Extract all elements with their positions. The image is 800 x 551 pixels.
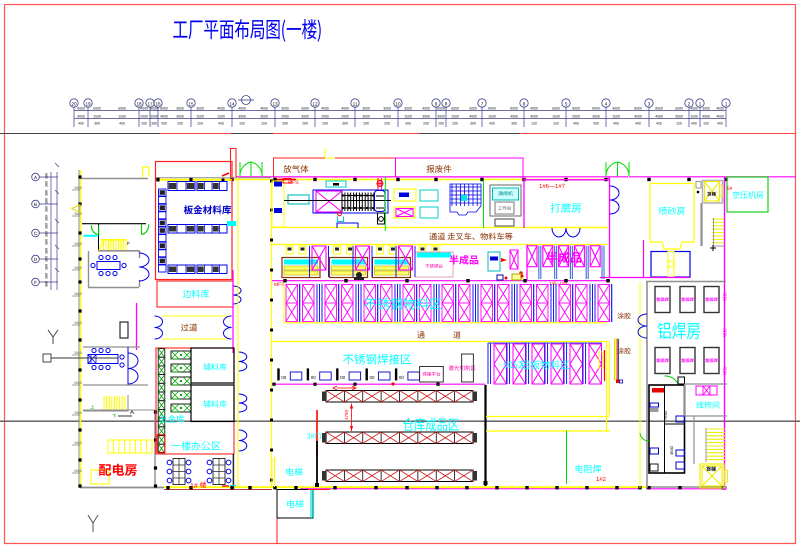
svg-text:300: 300 [151,122,157,126]
svg-text:4000: 4000 [469,115,477,119]
svg-text:200: 200 [452,122,458,126]
svg-text:150: 150 [239,122,245,126]
svg-text:2000: 2000 [140,115,148,119]
svg-text:300: 300 [405,122,411,126]
svg-text:150: 150 [261,122,267,126]
svg-text:400: 400 [613,122,619,126]
svg-text:3000: 3000 [176,107,184,111]
svg-text:380: 380 [45,215,49,221]
svg-text:1: 1 [725,101,728,106]
svg-text:380: 380 [45,248,49,254]
svg-text:4640: 4640 [669,445,674,455]
svg-text:400: 400 [691,122,697,126]
svg-text:4000: 4000 [655,115,663,119]
svg-text:8000: 8000 [655,107,663,111]
svg-text:380: 380 [45,281,49,287]
svg-text:6000: 6000 [301,107,309,111]
svg-text:13: 13 [272,101,278,106]
svg-text:6000: 6000 [150,107,158,111]
svg-text:200: 200 [302,122,308,126]
svg-text:00: 00 [370,375,376,380]
svg-text:14: 14 [229,101,235,106]
svg-text:380: 380 [45,206,49,212]
svg-text:17: 17 [147,101,153,106]
svg-text:4000: 4000 [690,107,698,111]
svg-text:3000: 3000 [592,115,600,119]
svg-text:7: 7 [481,101,484,106]
svg-text:3800: 3800 [74,411,82,415]
svg-text:F: F [34,280,37,285]
svg-text:3800: 3800 [74,292,82,296]
svg-text:3000: 3000 [238,115,246,119]
svg-text:380: 380 [45,198,49,204]
svg-text:3000: 3000 [404,107,412,111]
svg-text:3: 3 [648,101,651,106]
svg-text:4000: 4000 [530,115,538,119]
svg-text:6000: 6000 [118,107,126,111]
svg-text:4000: 4000 [702,115,710,119]
svg-text:3800: 3800 [74,212,82,216]
svg-text:3000: 3000 [176,115,184,119]
svg-text:400: 400 [78,122,84,126]
svg-text:380: 380 [45,273,49,279]
svg-text:16: 16 [155,101,161,106]
svg-text:200: 200 [363,122,369,126]
svg-text:1#2: 1#2 [596,476,607,483]
svg-text:F: F [127,241,130,246]
svg-text:6000: 6000 [552,107,560,111]
svg-text:3000: 3000 [362,115,370,119]
svg-text:380: 380 [45,256,49,262]
svg-text:3000: 3000 [301,115,309,119]
svg-text:3800: 3800 [74,321,82,325]
svg-text:3800: 3800 [74,351,82,355]
svg-text:2000: 2000 [150,115,158,119]
svg-text:4000: 4000 [260,107,268,111]
svg-text:6000: 6000 [437,107,445,111]
svg-text:300: 300 [342,122,348,126]
svg-text:150: 150 [197,122,203,126]
svg-text:200: 200 [322,122,328,126]
svg-text:4000: 4000 [341,107,349,111]
svg-text:8000: 8000 [572,107,580,111]
svg-text:1: 1 [699,101,702,106]
svg-text:6: 6 [523,101,526,106]
svg-text:200: 200 [384,122,390,126]
svg-text:400: 400 [573,122,579,126]
svg-text:4000: 4000 [530,107,538,111]
svg-text:8000: 8000 [592,107,600,111]
svg-text:3000: 3000 [702,107,710,111]
svg-text:4000: 4000 [77,115,85,119]
svg-text:4000: 4000 [140,107,148,111]
svg-text:8000: 8000 [77,107,85,111]
svg-text:400: 400 [489,122,495,126]
svg-text:3800: 3800 [74,441,82,445]
svg-text:300: 300 [593,122,599,126]
svg-text:6000: 6000 [469,107,477,111]
svg-text:6000: 6000 [675,107,683,111]
svg-text:1#6—1#7: 1#6—1#7 [539,183,566,190]
svg-text:00: 00 [311,375,317,380]
svg-text:5: 5 [565,101,568,106]
svg-text:300: 300 [470,122,476,126]
svg-text:380: 380 [45,264,49,270]
svg-text:400: 400 [119,122,125,126]
svg-text:150: 150 [703,122,709,126]
svg-text:380: 380 [45,173,49,179]
svg-text:200: 200 [438,122,444,126]
svg-text:3000: 3000 [437,115,445,119]
svg-text:1500: 1500 [612,115,620,119]
svg-text:3000: 3000 [383,107,391,111]
svg-text:3000: 3000 [281,107,289,111]
svg-text:1500: 1500 [451,115,459,119]
svg-text:2000: 2000 [321,115,329,119]
svg-text:2: 2 [688,101,691,106]
svg-text:4000: 4000 [238,107,246,111]
svg-text:12: 12 [312,101,318,106]
svg-text:3800: 3800 [74,186,82,190]
svg-text:4000: 4000 [160,115,168,119]
svg-text:19: 19 [85,101,91,106]
svg-text:3000: 3000 [675,115,683,119]
svg-text:8000: 8000 [634,107,642,111]
svg-text:15: 15 [188,101,194,106]
svg-text:1500: 1500 [217,115,225,119]
svg-text:11: 11 [353,101,358,106]
svg-text:4000: 4000 [716,107,724,111]
svg-text:300: 300 [511,122,517,126]
svg-text:8000: 8000 [510,107,518,111]
svg-text:400: 400 [218,122,224,126]
svg-text:6000: 6000 [451,107,459,111]
svg-text:3800: 3800 [74,242,82,246]
svg-text:B: B [34,202,37,207]
svg-text:20: 20 [71,101,77,106]
svg-text:4000: 4000 [634,115,642,119]
svg-text:1#: 1# [190,483,198,490]
svg-text:150: 150 [553,122,559,126]
svg-text:2000: 2000 [341,115,349,119]
svg-text:1#5--1#8: 1#5--1#8 [549,281,568,286]
svg-text:400: 400 [656,122,662,126]
svg-text:380: 380 [45,223,49,229]
svg-text:18: 18 [136,101,142,106]
svg-text:2000: 2000 [281,115,289,119]
svg-text:00: 00 [399,375,405,380]
svg-text:3800: 3800 [74,266,82,270]
svg-text:4000: 4000 [321,107,329,111]
svg-text:3800: 3800 [74,469,82,473]
svg-text:1500: 1500 [93,115,101,119]
svg-text:00: 00 [281,375,287,380]
svg-text:1500: 1500 [118,115,126,119]
svg-text:380: 380 [45,190,49,196]
svg-text:380: 380 [45,181,49,187]
svg-text:200: 200 [141,122,147,126]
svg-text:1500: 1500 [690,115,698,119]
svg-text:380: 380 [45,231,49,237]
svg-text:3000: 3000 [196,107,204,111]
svg-text:6000: 6000 [93,107,101,111]
svg-text:4000: 4000 [422,107,430,111]
svg-text:300: 300 [161,122,167,126]
svg-text:4000: 4000 [217,107,225,111]
svg-text:200: 200 [177,122,183,126]
svg-text:10: 10 [395,101,401,106]
svg-text:300: 300 [282,122,288,126]
svg-text:150: 150 [676,122,682,126]
svg-text:4000: 4000 [716,115,724,119]
svg-text:3000: 3000 [260,115,268,119]
svg-text:4750: 4750 [344,409,349,420]
svg-text:200: 200 [423,122,429,126]
svg-text:1500: 1500 [404,115,412,119]
svg-text:8: 8 [445,101,448,106]
svg-text:9: 9 [435,101,438,106]
svg-text:4000: 4000 [612,107,620,111]
svg-text:300: 300 [94,122,100,126]
svg-text:3800: 3800 [74,381,82,385]
svg-text:3000: 3000 [383,115,391,119]
svg-text:1500: 1500 [196,115,204,119]
svg-text:4000: 4000 [510,115,518,119]
svg-text:8000: 8000 [160,107,168,111]
svg-text:8000: 8000 [488,107,496,111]
svg-text:400: 400 [717,122,723,126]
svg-text:1500: 1500 [488,115,496,119]
svg-text:4: 4 [605,101,608,106]
svg-text:5#: 5# [727,186,733,192]
svg-text:400: 400 [635,122,641,126]
svg-text:3000: 3000 [422,115,430,119]
svg-text:7640: 7640 [663,410,668,420]
svg-text:150: 150 [531,122,537,126]
svg-text:380: 380 [45,239,49,245]
svg-text:1500: 1500 [552,115,560,119]
svg-text:2000: 2000 [572,115,580,119]
svg-text:3000: 3000 [362,107,370,111]
svg-text:00: 00 [340,375,346,380]
